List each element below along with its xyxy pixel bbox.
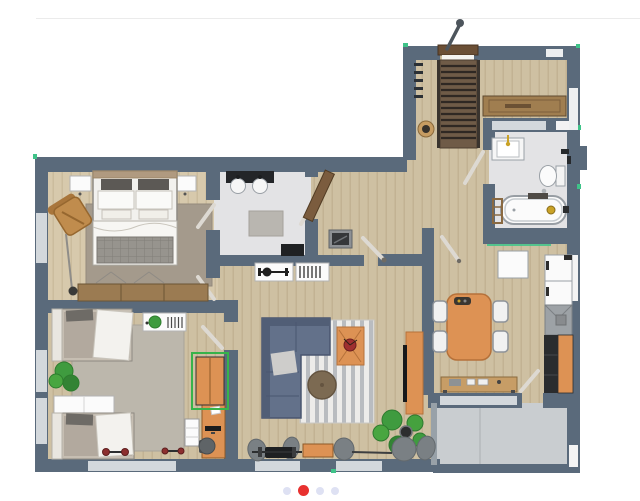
- wall-ensuite-right-b: [305, 219, 318, 259]
- coat-hook: [414, 63, 423, 66]
- wall-bedroom-right-b: [206, 230, 220, 278]
- fridge-handle: [546, 261, 549, 270]
- headrest-cushion: [101, 179, 132, 190]
- master-wardrobe: [78, 284, 208, 301]
- plant-leaf: [373, 425, 389, 441]
- wall-kids-right-a: [224, 300, 238, 322]
- window-balcony-right: [569, 445, 578, 467]
- hood-center: [556, 315, 566, 325]
- tv-sideboard: [406, 332, 423, 414]
- basket-inner: [422, 125, 430, 133]
- carousel-dots: [283, 484, 339, 497]
- towel-holder: [561, 149, 569, 154]
- sofa-back: [262, 318, 270, 418]
- coffee-table-dot: [320, 383, 324, 387]
- nightstand: [70, 176, 91, 191]
- window-living-bottom-b: [336, 461, 382, 471]
- toilet-tank: [556, 166, 565, 186]
- kids-shelf-plant: [149, 316, 161, 328]
- kitchen-cabinet-white: [545, 281, 572, 305]
- kids-bed-duvet: [93, 310, 133, 361]
- headrest-cushion: [138, 179, 169, 190]
- ensuite-faucet: [258, 175, 262, 179]
- pillow-small: [139, 210, 168, 219]
- tv-screen: [403, 345, 407, 402]
- carousel-dot-3[interactable]: [316, 487, 324, 495]
- dining-cabinet: [498, 251, 528, 278]
- kids-bed-headboard: [52, 309, 62, 361]
- bed-throw: [97, 237, 173, 263]
- bathtub-dot: [513, 209, 516, 212]
- floorplan-svg: [0, 0, 640, 501]
- floorplan-drawing: [33, 19, 587, 473]
- snap-marker: [576, 44, 580, 48]
- window-entry-right: [569, 88, 578, 130]
- lounge-chair: [392, 437, 416, 461]
- carousel-image[interactable]: [0, 0, 640, 501]
- wall-stub-right: [577, 146, 587, 170]
- stair-rail: [477, 60, 480, 148]
- wall-living-dining: [422, 228, 434, 395]
- bathtub-tap: [563, 206, 569, 213]
- wall-kids-right-b: [224, 350, 238, 462]
- dining-chair: [433, 301, 447, 322]
- ensuite-sink: [231, 179, 246, 194]
- bench-leg: [443, 390, 447, 393]
- centerpiece-dot: [458, 300, 461, 303]
- window-kids-bottom: [88, 461, 176, 471]
- kids-bed-pillow: [66, 309, 94, 321]
- ensuite-faucet: [236, 175, 240, 179]
- desk-paper: [211, 406, 221, 414]
- wall-bedroom-right-a: [206, 157, 220, 200]
- wall-bath-south: [483, 228, 580, 244]
- entrance-arrow-head: [456, 19, 464, 27]
- kitchen-counter-dark: [544, 335, 558, 393]
- pillow-small: [102, 210, 131, 219]
- centerpiece-dot: [464, 300, 467, 303]
- wall-entry-top-b: [474, 46, 580, 60]
- carousel-dot-2[interactable]: [298, 485, 309, 496]
- window-bedroom-left: [36, 213, 47, 263]
- stair-rail: [437, 60, 440, 148]
- toilet-flush: [542, 189, 547, 194]
- monitor-stand: [211, 432, 215, 434]
- bench-item-dot: [497, 380, 501, 384]
- bath-faucet-dot: [506, 142, 510, 146]
- cabinet-handle: [546, 287, 549, 296]
- dining-chair: [493, 331, 508, 352]
- pillow: [136, 191, 172, 209]
- nightstand-lamp: [79, 193, 82, 196]
- nightstand: [175, 176, 196, 191]
- entry-door-threshold: [438, 45, 478, 55]
- monitor: [205, 426, 221, 431]
- barbell-disc: [263, 268, 272, 277]
- pillow: [98, 191, 134, 209]
- window-kids-left-a: [36, 350, 47, 392]
- floor-lamp-base: [69, 287, 78, 296]
- sofa-throw: [271, 350, 298, 375]
- towel-holder: [567, 156, 571, 164]
- snap-line: [487, 244, 551, 246]
- kids-bed-headboard: [52, 413, 62, 459]
- coat-hook: [414, 95, 423, 98]
- orange-bench: [303, 444, 333, 457]
- table-centerpiece: [454, 297, 471, 305]
- bench-item: [478, 379, 488, 385]
- kids-plant-leaf: [63, 375, 79, 391]
- plant-pot: [400, 426, 412, 438]
- dumbbell-plate: [162, 448, 168, 454]
- master-bed-headboard: [93, 171, 177, 178]
- kids-shelf-dot: [146, 322, 149, 325]
- wall-entry-top-a: [403, 46, 440, 60]
- window-dining: [440, 396, 517, 405]
- dumbbell-plate: [178, 448, 184, 454]
- coat-hook: [414, 87, 423, 90]
- toilet-bowl: [540, 166, 557, 187]
- barbell-cap: [258, 268, 261, 276]
- bench-leg: [511, 390, 515, 393]
- snap-marker: [33, 154, 37, 159]
- exercise-bar: [352, 452, 392, 453]
- window-kids-left-b: [36, 398, 47, 444]
- shower-mat: [249, 211, 283, 236]
- wall-balcony-bottom: [433, 464, 580, 473]
- carousel-dot-1[interactable]: [283, 487, 291, 495]
- window-living-bottom-a: [255, 461, 300, 471]
- dumbbell-plate: [103, 449, 110, 456]
- wall-ensuite-right-a: [305, 157, 318, 177]
- staircase: [440, 60, 477, 148]
- ensuite-sink: [253, 179, 268, 194]
- living-door-hinge: [382, 258, 387, 263]
- barbell-plate: [292, 447, 296, 457]
- dumbbell-plate: [122, 449, 129, 456]
- dining-door-hinge: [457, 259, 461, 263]
- bench-item: [467, 379, 475, 385]
- wall-top: [35, 157, 407, 172]
- kitchen-corner-mark: [564, 255, 572, 260]
- snap-marker: [577, 184, 581, 189]
- drawer-unit: [185, 419, 199, 446]
- carousel-dot-4[interactable]: [331, 487, 339, 495]
- kids-plant-leaf: [49, 374, 63, 388]
- window-bath-a: [492, 121, 546, 130]
- coat-hook: [414, 71, 423, 74]
- nightstand-lamp: [184, 193, 187, 196]
- barbell-plate: [258, 447, 262, 457]
- kids-bed-pillow: [66, 414, 93, 426]
- snap-marker: [331, 469, 336, 473]
- floor-balcony: [434, 403, 569, 466]
- entry-sideboard-handle: [505, 104, 531, 108]
- desk-chair: [199, 438, 215, 454]
- bathtub-drain: [547, 206, 555, 214]
- bathtub-caddy: [528, 193, 548, 199]
- bath-mat: [281, 244, 304, 256]
- window-entry-top: [546, 49, 563, 57]
- bench-item: [449, 379, 461, 386]
- kitchen-cabinet-orange: [558, 335, 573, 393]
- dining-chair: [493, 301, 508, 322]
- barbell-cap: [285, 268, 288, 276]
- snap-marker: [403, 43, 408, 47]
- dining-chair: [433, 331, 447, 352]
- coat-hook: [414, 79, 423, 82]
